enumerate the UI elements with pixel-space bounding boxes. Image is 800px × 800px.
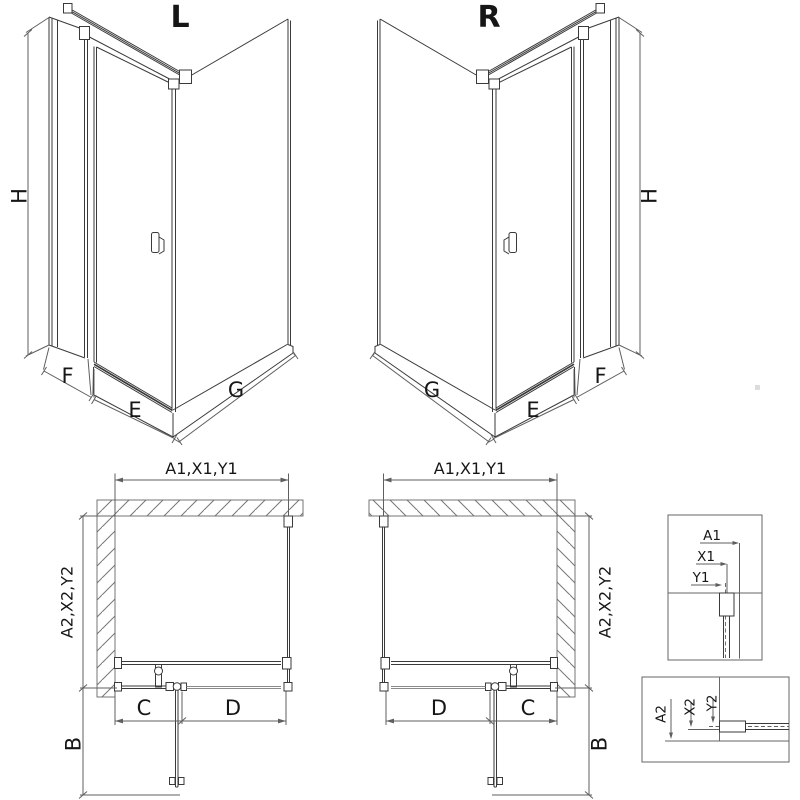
plan-view-right: A1,X1,Y1 A2,X2,Y2 D C B: [369, 459, 615, 799]
plan-view-left: A1,X1,Y1 A2,X2,Y2 C D B: [58, 459, 303, 799]
plan-left-d-label: D: [225, 696, 241, 720]
dim-label-e-left: E: [128, 398, 141, 422]
detail-y2-label: Y2: [705, 695, 721, 713]
diagram-page: L H F E G R H F E G A1,X1,Y1 A2,X2,Y2 C …: [0, 0, 800, 800]
detail-a2-label: A2: [654, 705, 670, 723]
view-right-label: R: [477, 0, 500, 35]
plan-left-c-label: C: [137, 696, 152, 720]
view-3d-left: L H F E G: [7, 0, 298, 445]
plan-right-c-label: C: [521, 696, 536, 720]
detail-box-bottom: A2 X2 Y2: [642, 677, 789, 762]
dim-label-g-right: G: [424, 378, 440, 402]
dim-label-e-right: E: [526, 398, 539, 422]
detail-y1-label: Y1: [692, 570, 710, 586]
detail-x2-label: X2: [683, 698, 699, 716]
watermark-dot: [755, 385, 760, 390]
dim-label-g-left: G: [228, 378, 244, 402]
view-left-label: L: [170, 0, 189, 35]
shower-dimension-diagram: L H F E G R H F E G A1,X1,Y1 A2,X2,Y2 C …: [0, 0, 800, 800]
plan-right-depth-label: A2,X2,Y2: [596, 566, 615, 638]
plan-left-depth-label: A2,X2,Y2: [58, 566, 77, 638]
dim-label-h-right: H: [637, 188, 661, 204]
plan-right-width-label: A1,X1,Y1: [434, 459, 506, 478]
dim-label-h-left: H: [7, 188, 31, 204]
dim-label-f-left: F: [61, 364, 73, 388]
plan-right-d-label: D: [431, 696, 447, 720]
plan-left-b-label: B: [61, 737, 85, 751]
detail-x1-label: X1: [697, 549, 715, 565]
detail-box-top: A1 X1 Y1: [668, 515, 762, 660]
dim-label-f-right: F: [594, 364, 606, 388]
plan-right-b-label: B: [587, 737, 611, 751]
plan-left-width-label: A1,X1,Y1: [165, 459, 237, 478]
view-3d-right: R H F E G: [370, 0, 661, 445]
detail-a1-label: A1: [703, 528, 721, 544]
